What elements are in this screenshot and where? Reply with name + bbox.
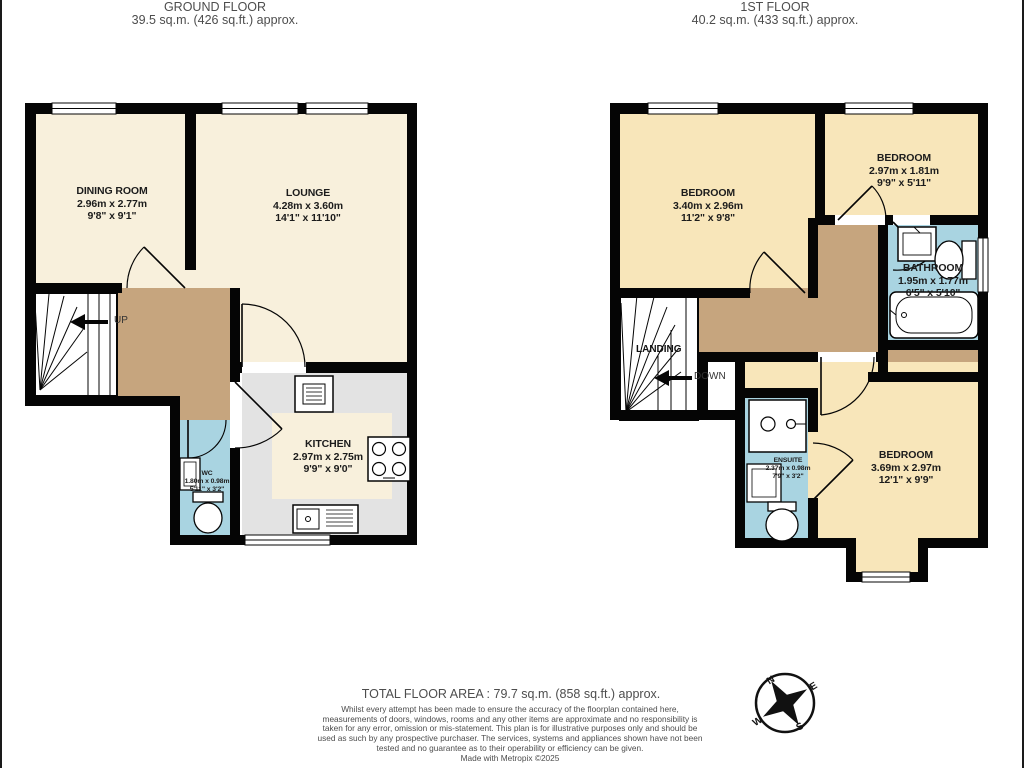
ground-stairs xyxy=(34,293,117,396)
dining-name: DINING ROOM xyxy=(22,185,202,198)
room-label-bedroom1: BEDROOM 3.40m x 2.96m 11'2" x 9'8" xyxy=(618,187,798,225)
dining-imperial: 9'8" x 9'1" xyxy=(22,210,202,223)
ground-floor-header: GROUND FLOOR 39.5 sq.m. (426 sq.ft.) app… xyxy=(65,1,365,27)
first-floor-area: 40.2 sq.m. (433 sq.ft.) approx. xyxy=(625,14,925,27)
bedroom2-metric: 2.97m x 1.81m xyxy=(814,165,994,178)
ensuite-toilet-icon xyxy=(766,502,798,541)
room-label-bedroom2: BEDROOM 2.97m x 1.81m 9'9" x 5'11" xyxy=(814,152,994,190)
kitchen-imperial: 9'9" x 9'0" xyxy=(238,463,418,476)
landing-label: LANDING xyxy=(636,345,682,355)
room-label-lounge: LOUNGE 4.28m x 3.60m 14'1" x 11'10" xyxy=(218,187,398,225)
room-label-bathroom: BATHROOM 1.95m x 1.77m 6'5" x 5'10" xyxy=(843,262,1023,300)
kitchen-metric: 2.97m x 2.75m xyxy=(238,451,418,464)
credit-text: Made with Metropix ©2025 xyxy=(314,754,706,764)
bathroom-metric: 1.95m x 1.77m xyxy=(843,275,1023,288)
bedroom3-metric: 3.69m x 2.97m xyxy=(816,462,996,475)
lounge-name: LOUNGE xyxy=(218,187,398,200)
oven-icon xyxy=(295,376,333,412)
stairs-up-label: UP xyxy=(114,316,128,326)
bathroom-basin-icon xyxy=(898,227,936,261)
floorplan-canvas: N E S W GROUND FLOOR 39.5 sq.m. (426 sq.… xyxy=(0,0,1024,768)
bathroom-imperial: 6'5" x 5'10" xyxy=(843,287,1023,300)
room-label-bedroom3: BEDROOM 3.69m x 2.97m 12'1" x 9'9" xyxy=(816,449,996,487)
bedroom2-imperial: 9'9" x 5'11" xyxy=(814,177,994,190)
bedroom1-imperial: 11'2" x 9'8" xyxy=(618,212,798,225)
first-floor-header: 1ST FLOOR 40.2 sq.m. (433 sq.ft.) approx… xyxy=(625,1,925,27)
lounge-imperial: 14'1" x 11'10" xyxy=(218,212,398,225)
wc-toilet-icon xyxy=(193,492,223,533)
wc-imperial: 5'11" x 3'2" xyxy=(162,486,252,494)
compass-rose: N E S W xyxy=(736,656,834,751)
total-floor-area: TOTAL FLOOR AREA : 79.7 sq.m. (858 sq.ft… xyxy=(311,687,711,701)
shower-icon xyxy=(749,400,806,452)
bedroom1-metric: 3.40m x 2.96m xyxy=(618,200,798,213)
compass-west-label: W xyxy=(751,714,765,729)
room-label-wc: WC 1.80m x 0.98m 5'11" x 3'2" xyxy=(162,470,252,494)
bedroom2-name: BEDROOM xyxy=(814,152,994,165)
sink-icon xyxy=(293,505,358,533)
kitchen-name: KITCHEN xyxy=(238,438,418,451)
floorplan-graphics: N E S W xyxy=(0,0,1024,768)
room-label-kitchen: KITCHEN 2.97m x 2.75m 9'9" x 9'0" xyxy=(238,438,418,476)
bedroom1-name: BEDROOM xyxy=(618,187,798,200)
dining-metric: 2.96m x 2.77m xyxy=(22,198,202,211)
first-stairs xyxy=(620,293,698,420)
compass-east-label: E xyxy=(808,680,820,693)
bathroom-name: BATHROOM xyxy=(843,262,1023,275)
bedroom3-imperial: 12'1" x 9'9" xyxy=(816,474,996,487)
wc-name: WC xyxy=(162,470,252,478)
compass-south-label: S xyxy=(794,721,806,734)
ground-floor-area: 39.5 sq.m. (426 sq.ft.) approx. xyxy=(65,14,365,27)
wc-metric: 1.80m x 0.98m xyxy=(162,478,252,486)
stairs-down-label: DOWN xyxy=(694,372,726,382)
lounge-metric: 4.28m x 3.60m xyxy=(218,200,398,213)
disclaimer-text: Whilst every attempt has been made to en… xyxy=(314,705,706,754)
bedroom3-name: BEDROOM xyxy=(816,449,996,462)
room-label-dining: DINING ROOM 2.96m x 2.77m 9'8" x 9'1" xyxy=(22,185,202,223)
